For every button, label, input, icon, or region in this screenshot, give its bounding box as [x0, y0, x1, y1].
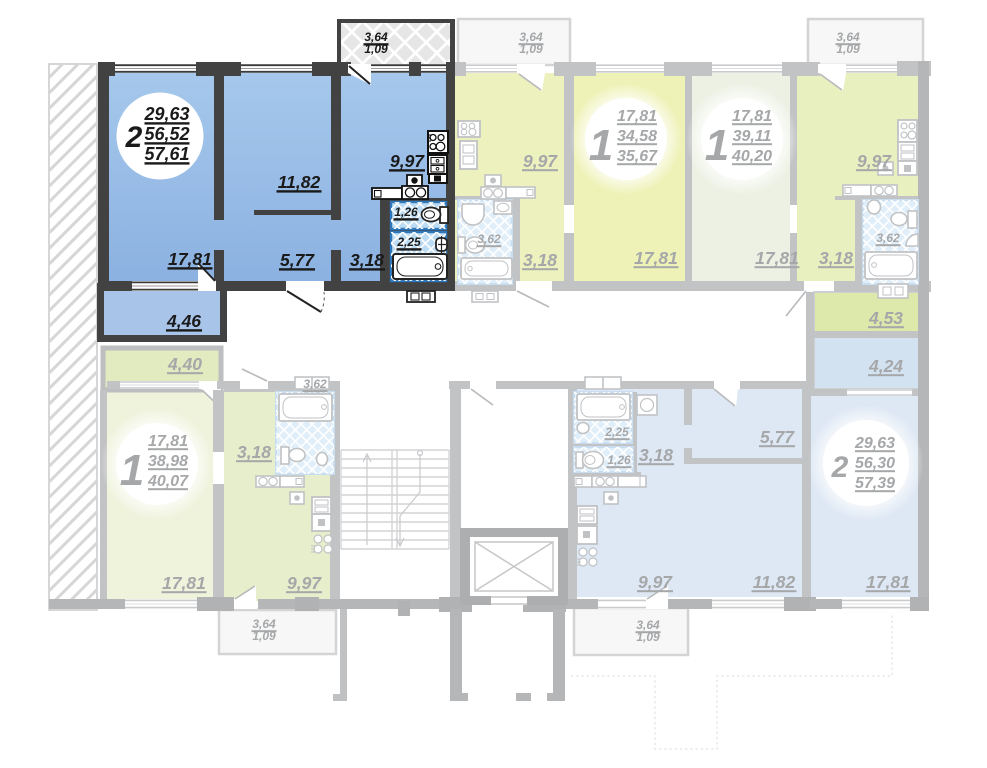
svg-text:9,97: 9,97	[523, 151, 558, 171]
svg-text:34,58: 34,58	[617, 128, 657, 145]
svg-text:17,81: 17,81	[162, 573, 206, 593]
svg-text:1,26: 1,26	[394, 205, 418, 219]
svg-text:57,61: 57,61	[144, 144, 189, 164]
svg-text:1: 1	[705, 121, 729, 170]
svg-text:3,18: 3,18	[639, 445, 673, 465]
svg-text:5,77: 5,77	[760, 427, 795, 447]
svg-text:38,98: 38,98	[148, 453, 188, 470]
svg-text:40,20: 40,20	[731, 148, 772, 165]
svg-text:35,67: 35,67	[617, 148, 658, 165]
svg-text:2: 2	[125, 121, 143, 154]
svg-text:3,18: 3,18	[819, 248, 853, 268]
svg-text:9,97: 9,97	[390, 151, 425, 171]
svg-text:9,97: 9,97	[287, 573, 322, 593]
svg-text:2,25: 2,25	[604, 425, 629, 439]
svg-text:11,82: 11,82	[753, 572, 796, 592]
svg-text:29,63: 29,63	[854, 435, 895, 452]
svg-text:3,18: 3,18	[350, 250, 384, 270]
svg-text:1,09: 1,09	[836, 42, 860, 56]
svg-text:17,81: 17,81	[634, 248, 678, 268]
svg-text:3,62: 3,62	[303, 377, 327, 391]
svg-text:1,09: 1,09	[364, 42, 388, 56]
svg-text:17,81: 17,81	[755, 248, 799, 268]
svg-text:57,39: 57,39	[855, 475, 895, 492]
svg-text:56,52: 56,52	[144, 124, 189, 144]
svg-text:1,09: 1,09	[636, 630, 660, 644]
svg-text:39,11: 39,11	[733, 128, 772, 145]
svg-text:4,24: 4,24	[868, 356, 903, 376]
svg-text:1,26: 1,26	[607, 453, 631, 467]
svg-text:29,63: 29,63	[143, 104, 189, 124]
svg-text:17,81: 17,81	[148, 433, 188, 450]
svg-text:5,77: 5,77	[280, 250, 315, 270]
svg-text:9,97: 9,97	[857, 151, 892, 171]
svg-text:1,09: 1,09	[519, 42, 543, 56]
svg-text:4,40: 4,40	[167, 354, 202, 374]
svg-text:17,81: 17,81	[866, 572, 910, 592]
svg-text:4,46: 4,46	[166, 311, 201, 331]
svg-text:2,25: 2,25	[396, 235, 421, 249]
svg-text:1: 1	[120, 446, 144, 495]
svg-text:3,18: 3,18	[237, 442, 271, 462]
svg-text:3,18: 3,18	[523, 250, 557, 270]
svg-text:40,07: 40,07	[147, 473, 189, 490]
svg-text:9,97: 9,97	[638, 572, 673, 592]
svg-text:56,30: 56,30	[855, 455, 895, 472]
svg-text:11,82: 11,82	[278, 172, 321, 192]
svg-text:2: 2	[831, 451, 849, 484]
svg-text:4,53: 4,53	[868, 308, 903, 328]
svg-text:1: 1	[589, 121, 613, 170]
svg-text:17,81: 17,81	[617, 108, 657, 125]
svg-text:3,62: 3,62	[876, 231, 900, 245]
svg-text:17,81: 17,81	[168, 249, 212, 269]
svg-text:3,62: 3,62	[477, 232, 501, 246]
svg-text:17,81: 17,81	[732, 108, 772, 125]
svg-text:1,09: 1,09	[252, 629, 276, 643]
